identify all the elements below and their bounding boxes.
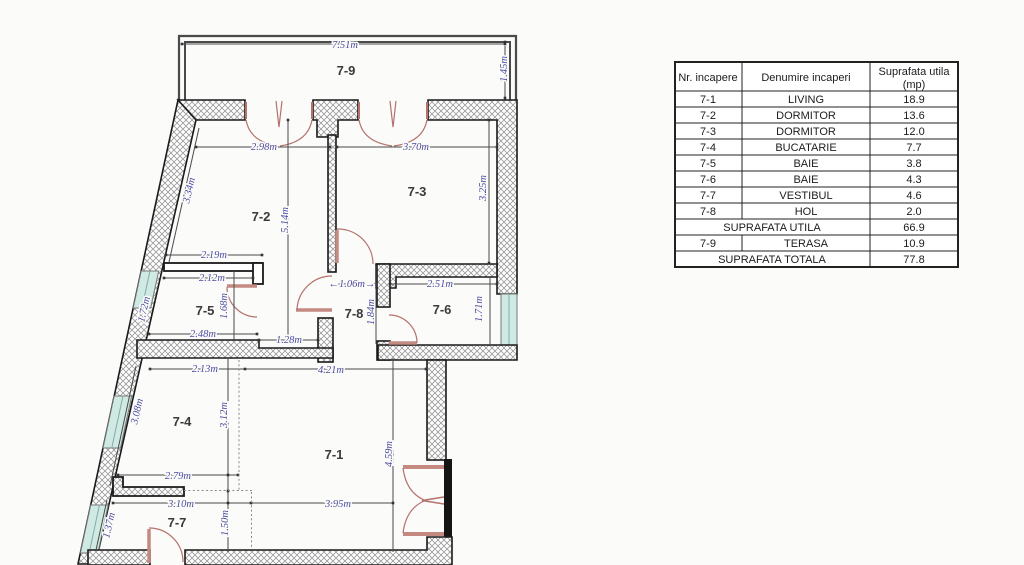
svg-text:10.9: 10.9 [903,238,924,250]
svg-text:TERASA: TERASA [784,238,829,250]
svg-text:2.51m: 2.51m [427,279,453,290]
svg-text:7-4: 7-4 [700,142,716,154]
svg-text:7-7: 7-7 [700,190,716,202]
svg-text:4.21m: 4.21m [318,365,344,376]
svg-text:←1.06m→: ←1.06m→ [329,279,376,290]
svg-text:1.28m: 1.28m [276,335,302,346]
svg-text:7-1: 7-1 [325,447,344,462]
svg-text:3.95m: 3.95m [324,499,351,510]
svg-text:7-6: 7-6 [700,174,716,186]
svg-text:1.71m: 1.71m [474,296,485,322]
svg-text:7-3: 7-3 [408,184,427,199]
svg-text:(mp): (mp) [903,79,926,91]
svg-text:1.84m: 1.84m [366,299,377,325]
svg-text:3.12m: 3.12m [219,402,230,429]
svg-text:7-6: 7-6 [433,302,452,317]
svg-text:7-4: 7-4 [173,414,193,429]
svg-text:4.6: 4.6 [906,190,921,202]
svg-text:7-8: 7-8 [345,306,364,321]
svg-text:VESTIBUL: VESTIBUL [779,190,832,202]
svg-text:2.98m: 2.98m [251,142,277,153]
svg-text:7-2: 7-2 [700,110,716,122]
svg-text:3.8: 3.8 [906,158,921,170]
svg-text:HOL: HOL [795,206,818,218]
svg-text:SUPRAFATA TOTALA: SUPRAFATA TOTALA [718,254,826,266]
svg-text:3.10m: 3.10m [167,499,194,510]
svg-text:7-5: 7-5 [196,303,215,318]
svg-text:13.6: 13.6 [903,110,924,122]
svg-text:1.50m: 1.50m [220,510,231,536]
svg-text:4.3: 4.3 [906,174,921,186]
svg-text:77.8: 77.8 [903,254,924,266]
svg-text:66.9: 66.9 [903,222,924,234]
svg-text:Denumire incaperi: Denumire incaperi [761,72,850,84]
svg-text:7-5: 7-5 [700,158,716,170]
svg-text:DORMITOR: DORMITOR [776,110,836,122]
svg-text:7-7: 7-7 [168,515,187,530]
svg-text:7-3: 7-3 [700,126,716,138]
svg-text:4.59m: 4.59m [384,441,395,467]
svg-text:5.14m: 5.14m [280,207,291,233]
svg-text:7-8: 7-8 [700,206,716,218]
svg-text:SUPRAFATA UTILA: SUPRAFATA UTILA [723,222,821,234]
svg-text:7-2: 7-2 [252,209,271,224]
svg-text:3.70m: 3.70m [402,142,429,153]
svg-text:DORMITOR: DORMITOR [776,126,836,138]
svg-text:BAIE: BAIE [793,158,818,170]
svg-text:1.68m: 1.68m [219,293,230,319]
svg-text:2.79m: 2.79m [165,471,191,482]
svg-text:2.12m: 2.12m [199,273,225,284]
svg-text:3.25m: 3.25m [478,175,489,202]
svg-text:2.48m: 2.48m [190,329,216,340]
svg-text:7-1: 7-1 [700,94,716,106]
svg-text:Suprafata utila: Suprafata utila [879,66,951,78]
svg-text:LIVING: LIVING [788,94,824,106]
svg-text:BUCATARIE: BUCATARIE [775,142,836,154]
svg-text:Nr. incapere: Nr. incapere [678,72,737,84]
svg-text:2.0: 2.0 [906,206,921,218]
svg-text:7-9: 7-9 [337,63,356,78]
svg-text:7-9: 7-9 [700,238,716,250]
svg-text:18.9: 18.9 [903,94,924,106]
svg-text:7.7: 7.7 [906,142,921,154]
svg-text:1.45m: 1.45m [499,56,510,82]
svg-text:7.51m: 7.51m [332,40,358,51]
svg-text:BAIE: BAIE [793,174,818,186]
svg-text:12.0: 12.0 [903,126,924,138]
svg-text:2.19m: 2.19m [201,250,227,261]
svg-text:2.13m: 2.13m [192,364,218,375]
